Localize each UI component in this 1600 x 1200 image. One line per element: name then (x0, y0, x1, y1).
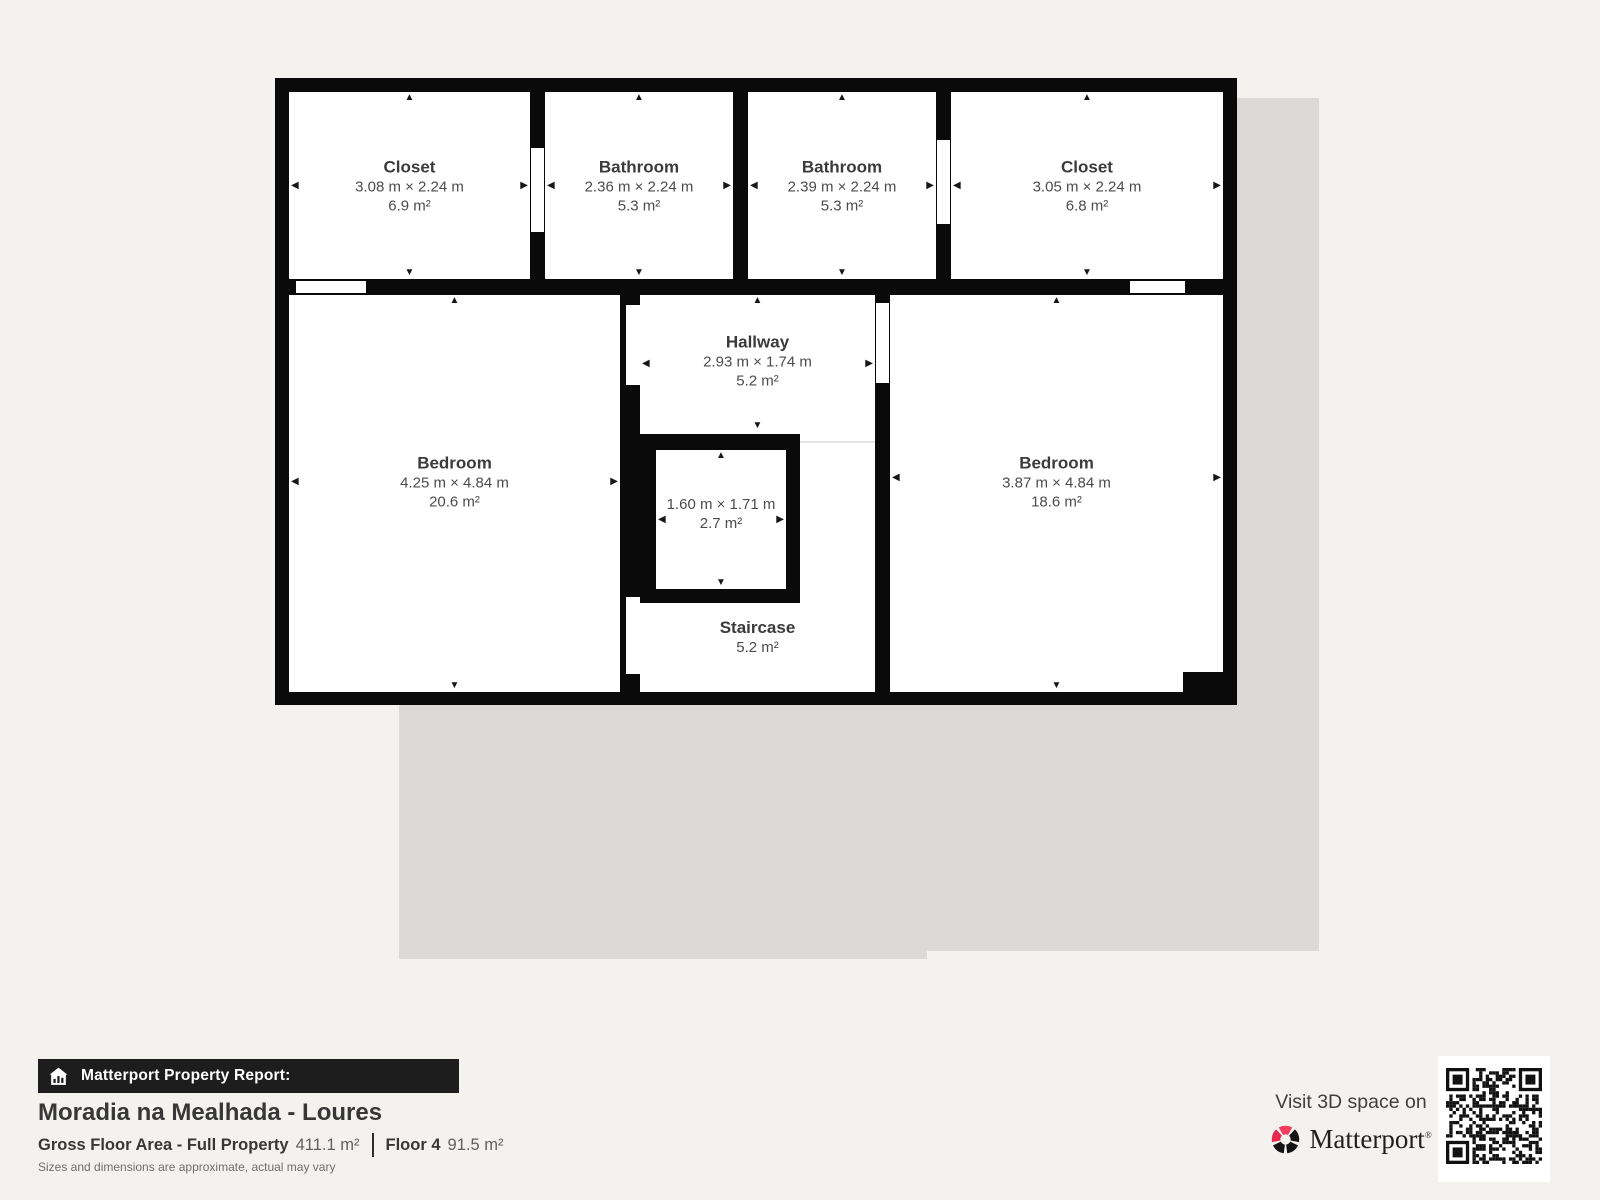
room-area: 5.2 m² (720, 638, 796, 657)
room-dimensions: 3.05 m × 2.24 m (1033, 177, 1142, 196)
room-dimensions: 4.25 m × 4.84 m (400, 473, 509, 492)
gross-floor-value: 411.1 m² (296, 1136, 360, 1155)
visit-3d-promo: Visit 3D space on Matterport® (1251, 1091, 1451, 1155)
room-area: 5.3 m² (585, 196, 694, 215)
room-label: Bedroom 4.25 m × 4.84 m 20.6 m² (400, 452, 509, 511)
room-name: Bathroom (585, 156, 694, 177)
qr-code (1438, 1056, 1550, 1182)
divider (372, 1133, 374, 1157)
house-chart-icon (48, 1066, 69, 1087)
arrow-down-icon: ▼ (405, 268, 415, 278)
arrow-up-icon: ▲ (753, 296, 763, 306)
room-label: Bedroom 3.87 m × 4.84 m 18.6 m² (1002, 452, 1111, 511)
arrow-right-icon: ▶ (723, 181, 731, 191)
arrow-left-icon: ◀ (953, 181, 961, 191)
arrow-down-icon: ▼ (716, 578, 726, 588)
matterport-wordmark: Matterport® (1309, 1124, 1431, 1155)
arrow-right-icon: ▶ (520, 181, 528, 191)
room-name: Closet (355, 156, 464, 177)
arrow-right-icon: ▶ (610, 477, 618, 487)
room-dimensions: 2.36 m × 2.24 m (585, 177, 694, 196)
floor-area-info: Gross Floor Area - Full Property 411.1 m… (38, 1133, 503, 1157)
room-dimensions: 3.87 m × 4.84 m (1002, 473, 1111, 492)
room-shaft: ▲ ▼ ◀ ▶ 1.60 m × 1.71 m 2.7 m² (656, 450, 786, 589)
room-label: Hallway 2.93 m × 1.74 m 5.2 m² (703, 331, 812, 390)
arrow-up-icon: ▲ (837, 93, 847, 103)
room-name: Closet (1033, 156, 1142, 177)
arrow-right-icon: ▶ (1213, 473, 1221, 483)
arrow-down-icon: ▼ (837, 268, 847, 278)
room-bedroom-right: ▲ ▼ ◀ ▶ Bedroom 3.87 m × 4.84 m 18.6 m² (890, 295, 1223, 692)
arrow-right-icon: ▶ (865, 359, 873, 369)
arrow-down-icon: ▼ (1082, 268, 1092, 278)
room-bedroom-left: ▲ ▼ ◀ ▶ Bedroom 4.25 m × 4.84 m 20.6 m² (289, 295, 620, 692)
room-name: Staircase (720, 617, 796, 638)
arrow-down-icon: ▼ (634, 268, 644, 278)
room-area: 2.7 m² (667, 514, 776, 533)
room-label: Bathroom 2.39 m × 2.24 m 5.3 m² (788, 156, 897, 215)
room-dimensions: 2.39 m × 2.24 m (788, 177, 897, 196)
arrow-left-icon: ◀ (547, 181, 555, 191)
door-hallway-right (876, 303, 889, 383)
room-name: Hallway (703, 331, 812, 352)
arrow-up-icon: ▲ (450, 296, 460, 306)
room-label: Closet 3.05 m × 2.24 m 6.8 m² (1033, 156, 1142, 215)
arrow-up-icon: ▲ (1082, 93, 1092, 103)
room-closet-2: ▲ ▼ ◀ ▶ Closet 3.05 m × 2.24 m 6.8 m² (951, 92, 1223, 279)
floor-plan: ▲ ▼ ◀ ▶ Closet 3.08 m × 2.24 m 6.9 m² ▲ … (275, 78, 1237, 705)
trademark-symbol: ® (1425, 1130, 1432, 1140)
arrow-up-icon: ▲ (634, 93, 644, 103)
opening-closet2-bedroom (1130, 281, 1185, 293)
arrow-left-icon: ◀ (642, 359, 650, 369)
visit-text: Visit 3D space on (1251, 1091, 1451, 1114)
arrow-up-icon: ▲ (405, 93, 415, 103)
room-staircase: Staircase 5.2 m² (640, 603, 875, 692)
page: ▲ ▼ ◀ ▶ Closet 3.08 m × 2.24 m 6.9 m² ▲ … (0, 0, 1600, 1200)
opening-closet1-bedroom (296, 281, 366, 293)
room-dimensions: 2.93 m × 1.74 m (703, 352, 812, 371)
room-label: Bathroom 2.36 m × 2.24 m 5.3 m² (585, 156, 694, 215)
floor-label: Floor 4 (386, 1136, 441, 1155)
room-area: 20.6 m² (400, 492, 509, 511)
room-bathroom-2: ▲ ▼ ◀ ▶ Bathroom 2.39 m × 2.24 m 5.3 m² (748, 92, 936, 279)
room-hallway: ▲ ▼ ◀ ▶ Hallway 2.93 m × 1.74 m 5.2 m² (640, 295, 875, 432)
stair-boundary-line (800, 441, 875, 443)
room-name: Bedroom (1002, 452, 1111, 473)
room-dimensions: 1.60 m × 1.71 m (667, 495, 776, 514)
room-label: Closet 3.08 m × 2.24 m 6.9 m² (355, 156, 464, 215)
arrow-right-icon: ▶ (1213, 181, 1221, 191)
room-label: 1.60 m × 1.71 m 2.7 m² (667, 495, 776, 533)
arrow-up-icon: ▲ (716, 451, 726, 461)
arrow-right-icon: ▶ (776, 515, 784, 525)
room-name: Bedroom (400, 452, 509, 473)
arrow-left-icon: ◀ (658, 515, 666, 525)
room-label: Staircase 5.2 m² (720, 617, 796, 657)
arrow-left-icon: ◀ (892, 473, 900, 483)
room-dimensions: 3.08 m × 2.24 m (355, 177, 464, 196)
room-area: 6.9 m² (355, 196, 464, 215)
gross-floor-label: Gross Floor Area - Full Property (38, 1136, 289, 1155)
report-banner: Matterport Property Report: (38, 1059, 459, 1093)
arrow-down-icon: ▼ (450, 681, 460, 691)
banner-label: Matterport Property Report: (81, 1067, 291, 1085)
arrow-down-icon: ▼ (753, 421, 763, 431)
arrow-left-icon: ◀ (750, 181, 758, 191)
floor-value: 91.5 m² (448, 1136, 504, 1155)
room-area: 6.8 m² (1033, 196, 1142, 215)
door-staircase-left (626, 597, 640, 674)
arrow-left-icon: ◀ (291, 477, 299, 487)
room-area: 18.6 m² (1002, 492, 1111, 511)
matterport-brand: Matterport® (1251, 1124, 1451, 1155)
plan-shadow-bottom-right (927, 705, 1319, 951)
room-name: Bathroom (788, 156, 897, 177)
arrow-left-icon: ◀ (291, 181, 299, 191)
qr-pattern (1446, 1068, 1542, 1164)
door-hallway-left (626, 305, 640, 385)
arrow-right-icon: ▶ (926, 181, 934, 191)
room-closet-1: ▲ ▼ ◀ ▶ Closet 3.08 m × 2.24 m 6.9 m² (289, 92, 530, 279)
property-title: Moradia na Mealhada - Loures (38, 1099, 382, 1127)
arrow-down-icon: ▼ (1052, 681, 1062, 691)
arrow-up-icon: ▲ (1052, 296, 1062, 306)
matterport-logo-icon (1270, 1124, 1301, 1155)
disclaimer-text: Sizes and dimensions are approximate, ac… (38, 1160, 335, 1174)
door-closet1-bathroom1 (531, 148, 544, 232)
room-bathroom-1: ▲ ▼ ◀ ▶ Bathroom 2.36 m × 2.24 m 5.3 m² (545, 92, 733, 279)
door-bathroom2-closet2 (937, 140, 950, 224)
plan-shadow-bottom-left (399, 705, 927, 959)
room-area: 5.2 m² (703, 371, 812, 390)
room-area: 5.3 m² (788, 196, 897, 215)
